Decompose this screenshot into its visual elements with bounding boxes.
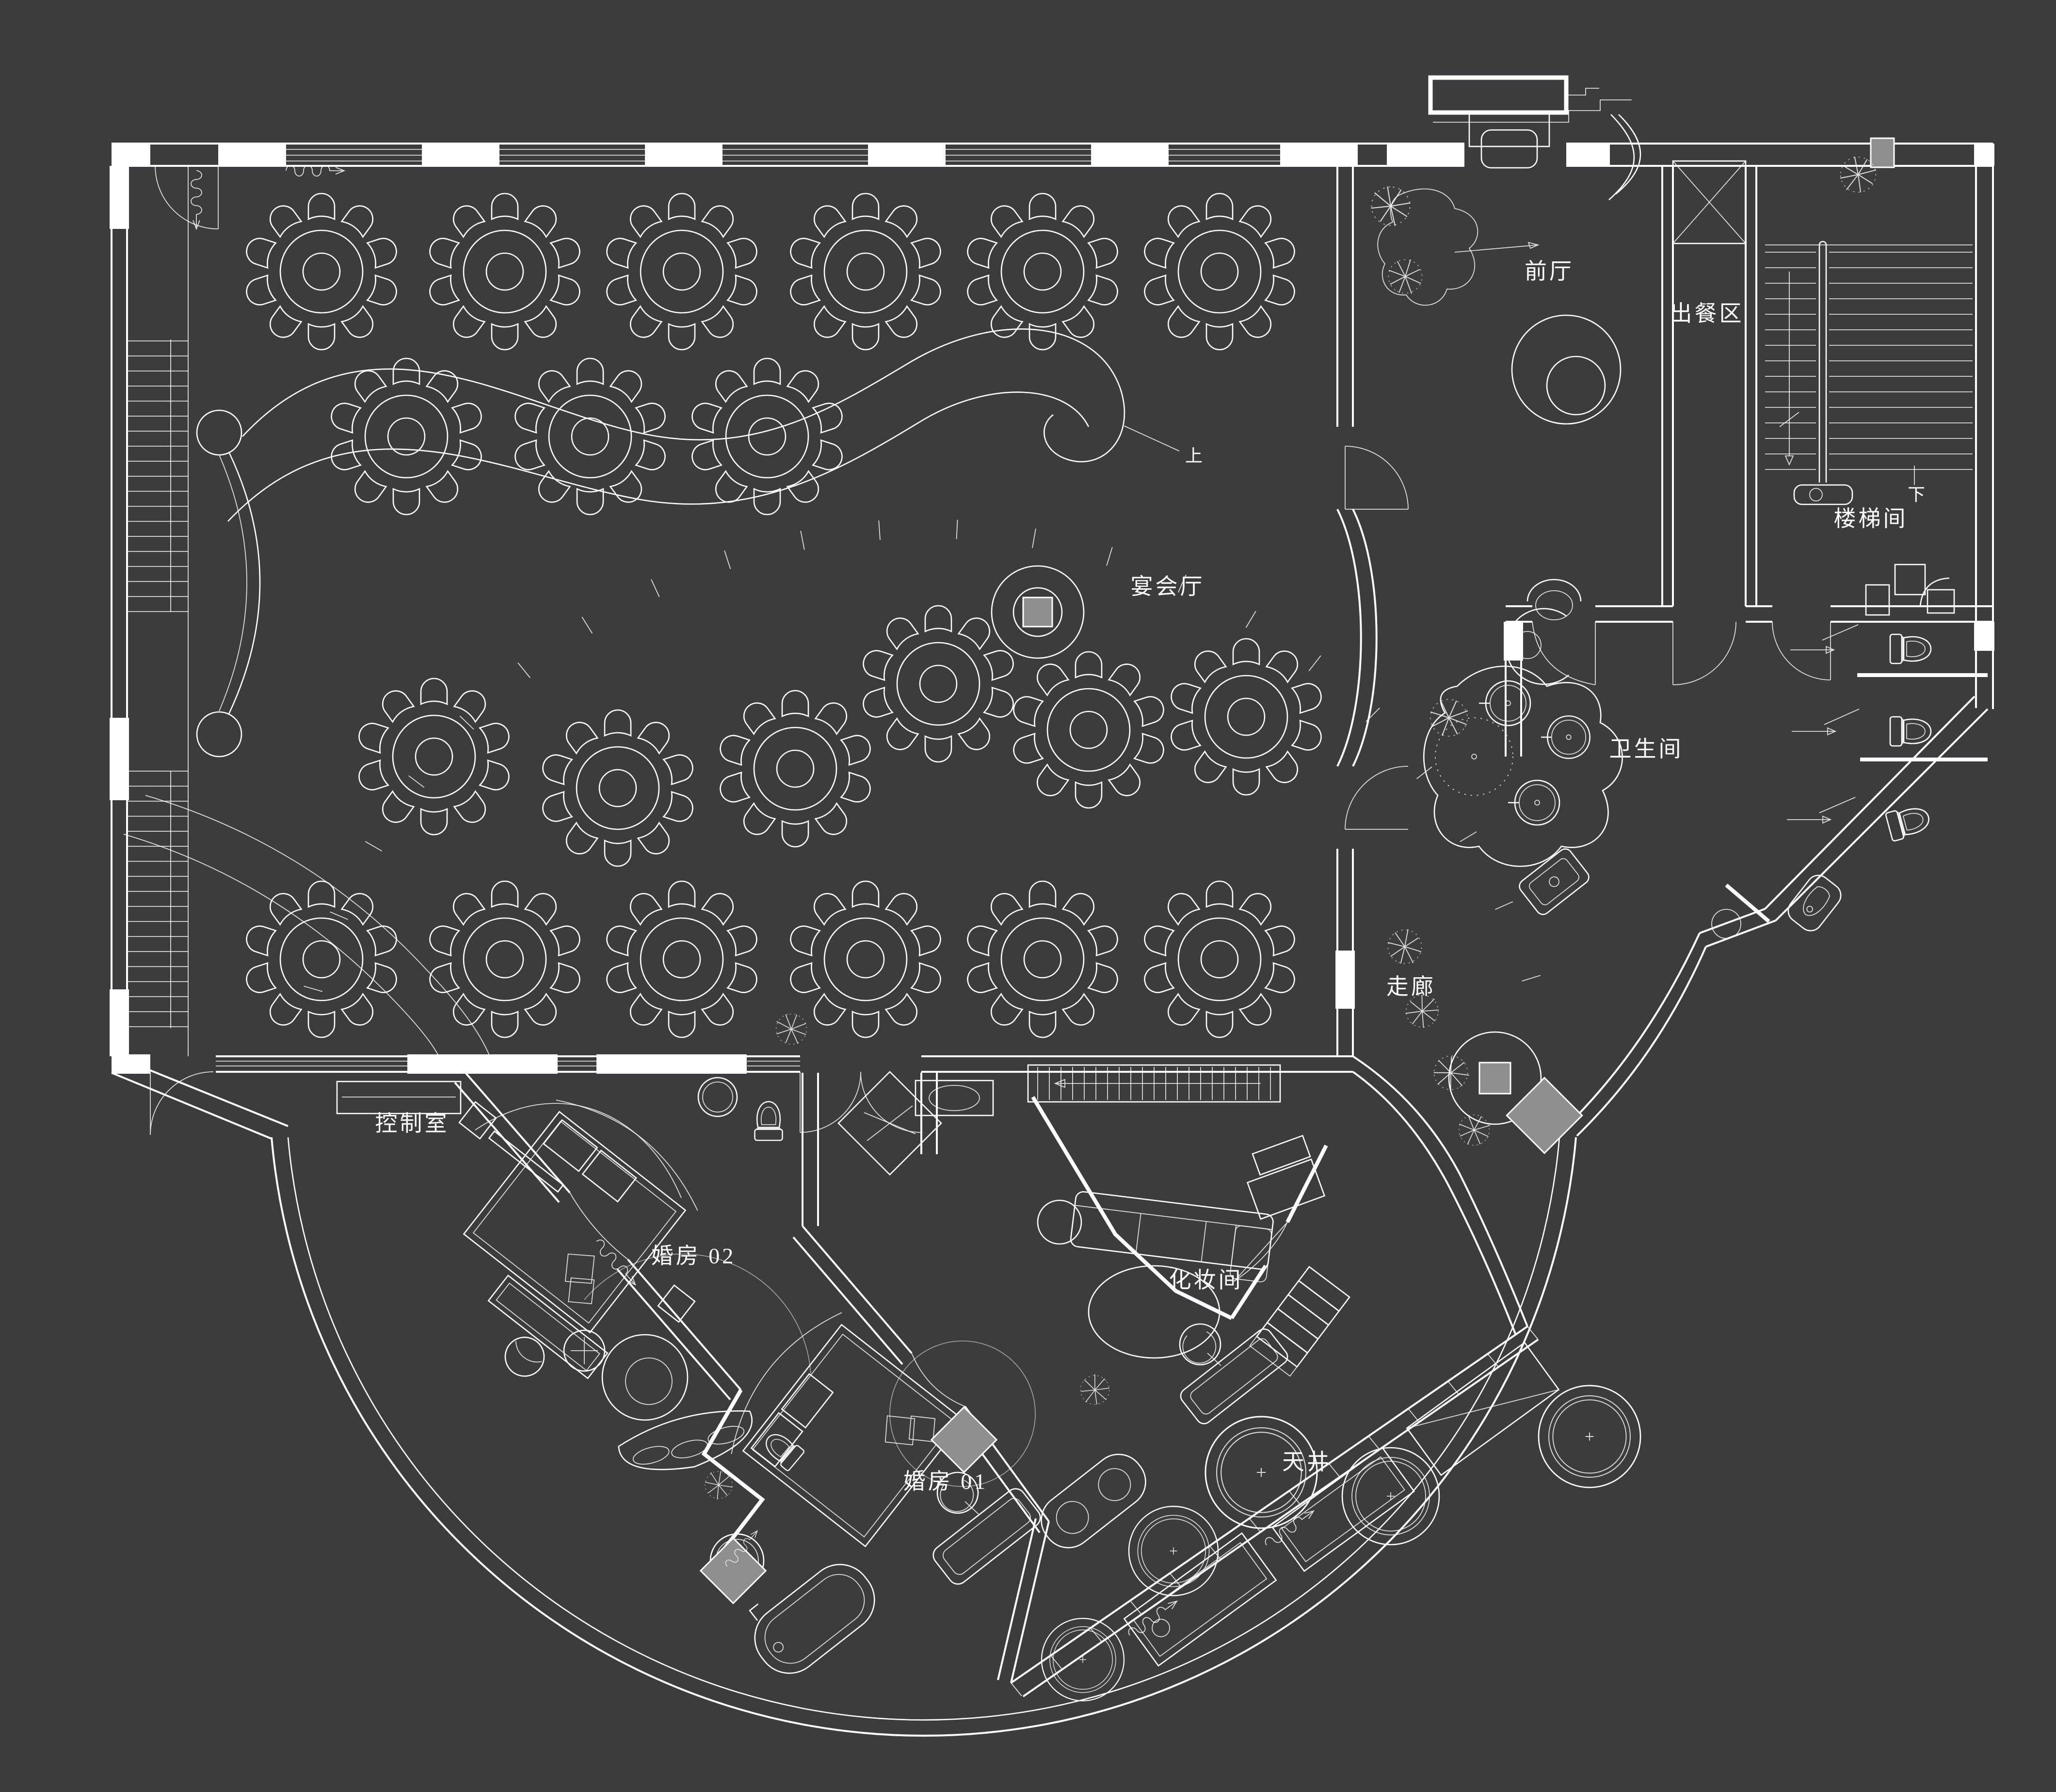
dining-table-icon — [540, 710, 696, 866]
room-label-courtyard: 天井 — [1282, 1450, 1332, 1474]
dining-table-icon — [689, 358, 846, 515]
dining-table-icon — [787, 881, 944, 1037]
dining-table-icon — [604, 194, 760, 350]
annotation-coils — [191, 165, 1317, 1640]
planters-layer — [1042, 1386, 1640, 1701]
dining-tables-layer — [243, 194, 1325, 1037]
planter-pot-icon — [1342, 1448, 1439, 1545]
curved-curtain-wall — [272, 520, 1576, 1736]
plant-icon — [1429, 1050, 1474, 1096]
corridor-features — [1449, 1032, 1582, 1153]
courtyard-features — [701, 1326, 1559, 1696]
room-label-makeup-room: 化妆间 — [1169, 1268, 1243, 1292]
room-label-corridor: 走廊 — [1386, 974, 1436, 999]
plant-icon — [1382, 924, 1428, 969]
dining-table-icon — [356, 678, 513, 835]
plant-icon — [775, 1013, 808, 1046]
dining-table-icon — [243, 881, 400, 1037]
service-shaft — [1673, 161, 1746, 243]
plants-layer — [701, 156, 1877, 1503]
dining-table-icon — [860, 606, 1017, 762]
stair-down-annotation: 下 — [1908, 485, 1925, 504]
room-labels: 前厅 出餐区 楼梯间 宴会厅 卫生间 走廊 控制室 婚房 02 化妆间 婚房 0… — [375, 259, 1926, 1494]
banquet-hall-decor — [124, 166, 1280, 1102]
dining-table-icon — [1141, 881, 1298, 1037]
dining-table-icon — [1011, 652, 1167, 808]
plant-icon — [1369, 185, 1412, 227]
dining-table-icon — [787, 194, 944, 350]
plant-icon — [1382, 253, 1429, 300]
column — [1871, 138, 1894, 167]
dining-table-icon — [427, 881, 583, 1037]
room-label-restroom: 卫生间 — [1609, 737, 1684, 761]
stairwell — [1765, 242, 1973, 615]
dining-table-icon — [604, 881, 760, 1037]
plant-icon — [701, 1467, 737, 1503]
room-label-front-hall: 前厅 — [1525, 259, 1574, 284]
doors — [150, 166, 1859, 1406]
room-label-bridal-room-01: 婚房 01 — [903, 1469, 988, 1494]
floor-plan-canvas: 前厅 出餐区 楼梯间 宴会厅 卫生间 走廊 控制室 婚房 02 化妆间 婚房 0… — [0, 0, 2056, 1792]
dining-table-icon — [1168, 639, 1325, 795]
dining-table-icon — [427, 194, 583, 350]
stair-up-annotation: 上 — [1185, 446, 1203, 466]
dining-table-icon — [328, 358, 485, 515]
bridal-room-02-furniture — [456, 1072, 993, 1485]
interior-walls — [455, 675, 1988, 1696]
planter-pot-icon — [1539, 1386, 1640, 1487]
dining-table-icon — [512, 358, 669, 515]
room-label-banquet-hall: 宴会厅 — [1131, 574, 1205, 599]
plant-icon — [1453, 1109, 1495, 1151]
dining-table-icon — [717, 691, 874, 847]
steps-to-courtyard — [1250, 1267, 1349, 1376]
room-label-serving-area: 出餐区 — [1670, 301, 1744, 326]
dining-table-icon — [964, 194, 1121, 350]
dining-table-icon — [964, 881, 1121, 1037]
dining-table-icon — [243, 194, 400, 350]
room-label-control-room: 控制室 — [375, 1111, 450, 1136]
main-entrance — [1378, 78, 1640, 424]
dining-table-icon — [1141, 194, 1298, 350]
control-room-furniture — [337, 1082, 461, 1114]
plant-icon — [1423, 692, 1475, 743]
plant-icon — [1075, 1370, 1115, 1410]
room-label-bridal-room-02: 婚房 02 — [651, 1243, 736, 1268]
room-label-stair-room: 楼梯间 — [1834, 506, 1908, 531]
